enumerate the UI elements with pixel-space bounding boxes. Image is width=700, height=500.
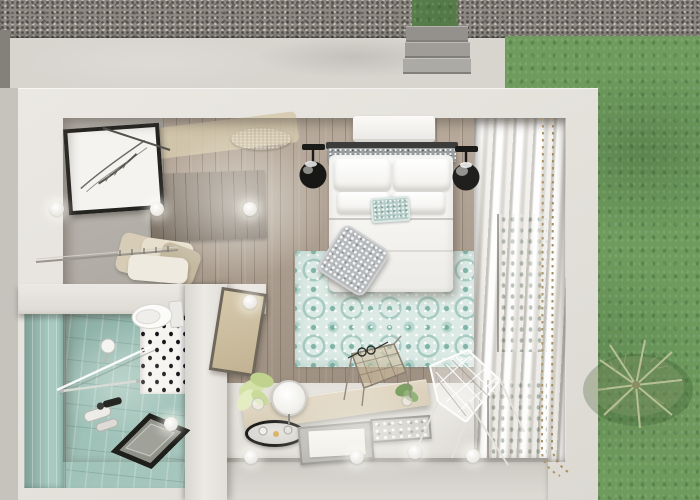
black-oval-tray xyxy=(245,420,305,447)
ceiling-light xyxy=(350,450,364,464)
grass-gap xyxy=(412,0,458,28)
window-pane xyxy=(487,380,547,458)
ac-unit xyxy=(353,116,435,142)
ceiling-light xyxy=(164,417,178,431)
step-2 xyxy=(405,42,470,56)
apartment-render xyxy=(0,0,700,500)
ceiling-light xyxy=(466,449,480,463)
ceiling-light xyxy=(408,445,422,459)
round-jute-mat xyxy=(231,128,291,150)
bottom-wall xyxy=(200,458,548,500)
pillow xyxy=(393,159,450,191)
pillow xyxy=(334,159,391,191)
decor-tray xyxy=(370,415,432,443)
ceiling-light xyxy=(244,450,258,464)
step-1 xyxy=(406,26,468,40)
hanging-clothes xyxy=(127,253,189,284)
walkway-edge xyxy=(0,30,10,92)
ceiling-light xyxy=(243,202,257,216)
artwork-sketch xyxy=(67,127,160,211)
framed-artwork xyxy=(63,123,165,215)
teal-accent-cushion xyxy=(370,196,411,224)
gravel-strip xyxy=(0,0,700,38)
ceiling-light xyxy=(150,202,164,216)
ceiling-light xyxy=(50,202,64,216)
ceiling-light xyxy=(243,295,257,309)
bathroom-tiled-wall xyxy=(24,298,66,488)
window-pane xyxy=(497,214,547,352)
exterior-left-ground xyxy=(0,88,18,500)
round-vanity-mirror xyxy=(271,380,307,416)
step-3 xyxy=(403,58,471,72)
